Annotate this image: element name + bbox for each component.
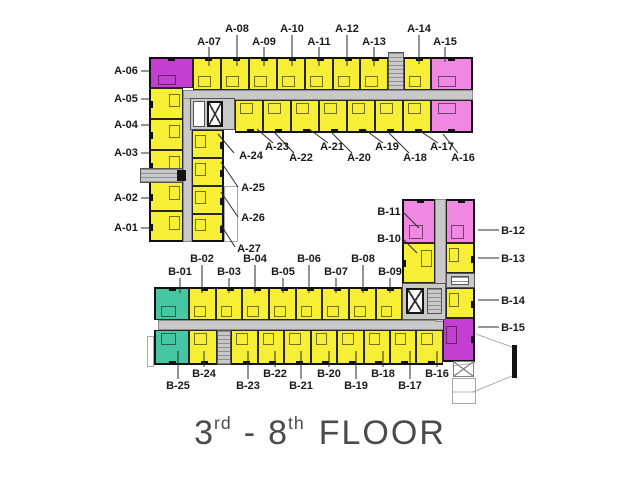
unit-label-A-24: A-24 xyxy=(239,150,263,162)
unit-label-A-16: A-16 xyxy=(451,152,475,164)
unit-label-A-07: A-07 xyxy=(197,36,221,48)
unit-label-A-23: A-23 xyxy=(265,141,289,153)
floorplan-canvas: A-08A-10A-12A-14A-07A-09A-11A-13A-15A-06… xyxy=(0,0,640,480)
unit-label-B-05: B-05 xyxy=(271,266,295,278)
unit-label-A-14: A-14 xyxy=(407,23,431,35)
unit-label-A-06: A-06 xyxy=(114,65,138,77)
unit-label-A-04: A-04 xyxy=(114,119,138,131)
unit-label-B-10: B-10 xyxy=(377,233,401,245)
unit-label-B-16: B-16 xyxy=(425,368,449,380)
unit-label-B-04: B-04 xyxy=(243,253,267,265)
unit-label-A-09: A-09 xyxy=(252,36,276,48)
unit-label-B-18: B-18 xyxy=(371,368,395,380)
unit-label-B-24: B-24 xyxy=(192,368,216,380)
unit-label-B-03: B-03 xyxy=(217,266,241,278)
unit-label-A-08: A-08 xyxy=(225,23,249,35)
unit-label-A-03: A-03 xyxy=(114,147,138,159)
unit-label-B-22: B-22 xyxy=(263,368,287,380)
unit-label-A-13: A-13 xyxy=(362,36,386,48)
unit-label-B-23: B-23 xyxy=(236,380,260,392)
unit-label-B-06: B-06 xyxy=(297,253,321,265)
unit-label-A-10: A-10 xyxy=(280,23,304,35)
unit-label-B-09: B-09 xyxy=(378,266,402,278)
unit-label-B-11: B-11 xyxy=(377,206,400,218)
unit-label-B-15: B-15 xyxy=(501,322,525,334)
unit-label-A-15: A-15 xyxy=(433,36,457,48)
unit-label-A-26: A-26 xyxy=(241,212,265,224)
unit-label-B-07: B-07 xyxy=(324,266,348,278)
unit-label-A-18: A-18 xyxy=(403,152,427,164)
unit-label-A-01: A-01 xyxy=(114,222,138,234)
unit-label-B-25: B-25 xyxy=(166,380,190,392)
unit-label-A-11: A-11 xyxy=(307,36,330,48)
unit-label-B-12: B-12 xyxy=(501,225,525,237)
unit-labels-layer: A-08A-10A-12A-14A-07A-09A-11A-13A-15A-06… xyxy=(0,0,640,480)
unit-label-A-05: A-05 xyxy=(114,93,138,105)
unit-label-A-19: A-19 xyxy=(375,141,399,153)
unit-label-B-20: B-20 xyxy=(317,368,341,380)
unit-label-B-02: B-02 xyxy=(190,253,214,265)
unit-label-A-02: A-02 xyxy=(114,192,138,204)
unit-label-A-12: A-12 xyxy=(335,23,359,35)
unit-label-B-13: B-13 xyxy=(501,253,525,265)
unit-label-A-21: A-21 xyxy=(320,141,344,153)
unit-label-A-22: A-22 xyxy=(289,152,313,164)
unit-label-B-19: B-19 xyxy=(344,380,368,392)
unit-label-B-17: B-17 xyxy=(398,380,422,392)
unit-label-A-25: A-25 xyxy=(241,182,265,194)
unit-label-B-08: B-08 xyxy=(351,253,375,265)
unit-label-B-01: B-01 xyxy=(168,266,192,278)
unit-label-A-20: A-20 xyxy=(347,152,371,164)
unit-label-B-21: B-21 xyxy=(289,380,313,392)
unit-label-B-14: B-14 xyxy=(501,295,525,307)
